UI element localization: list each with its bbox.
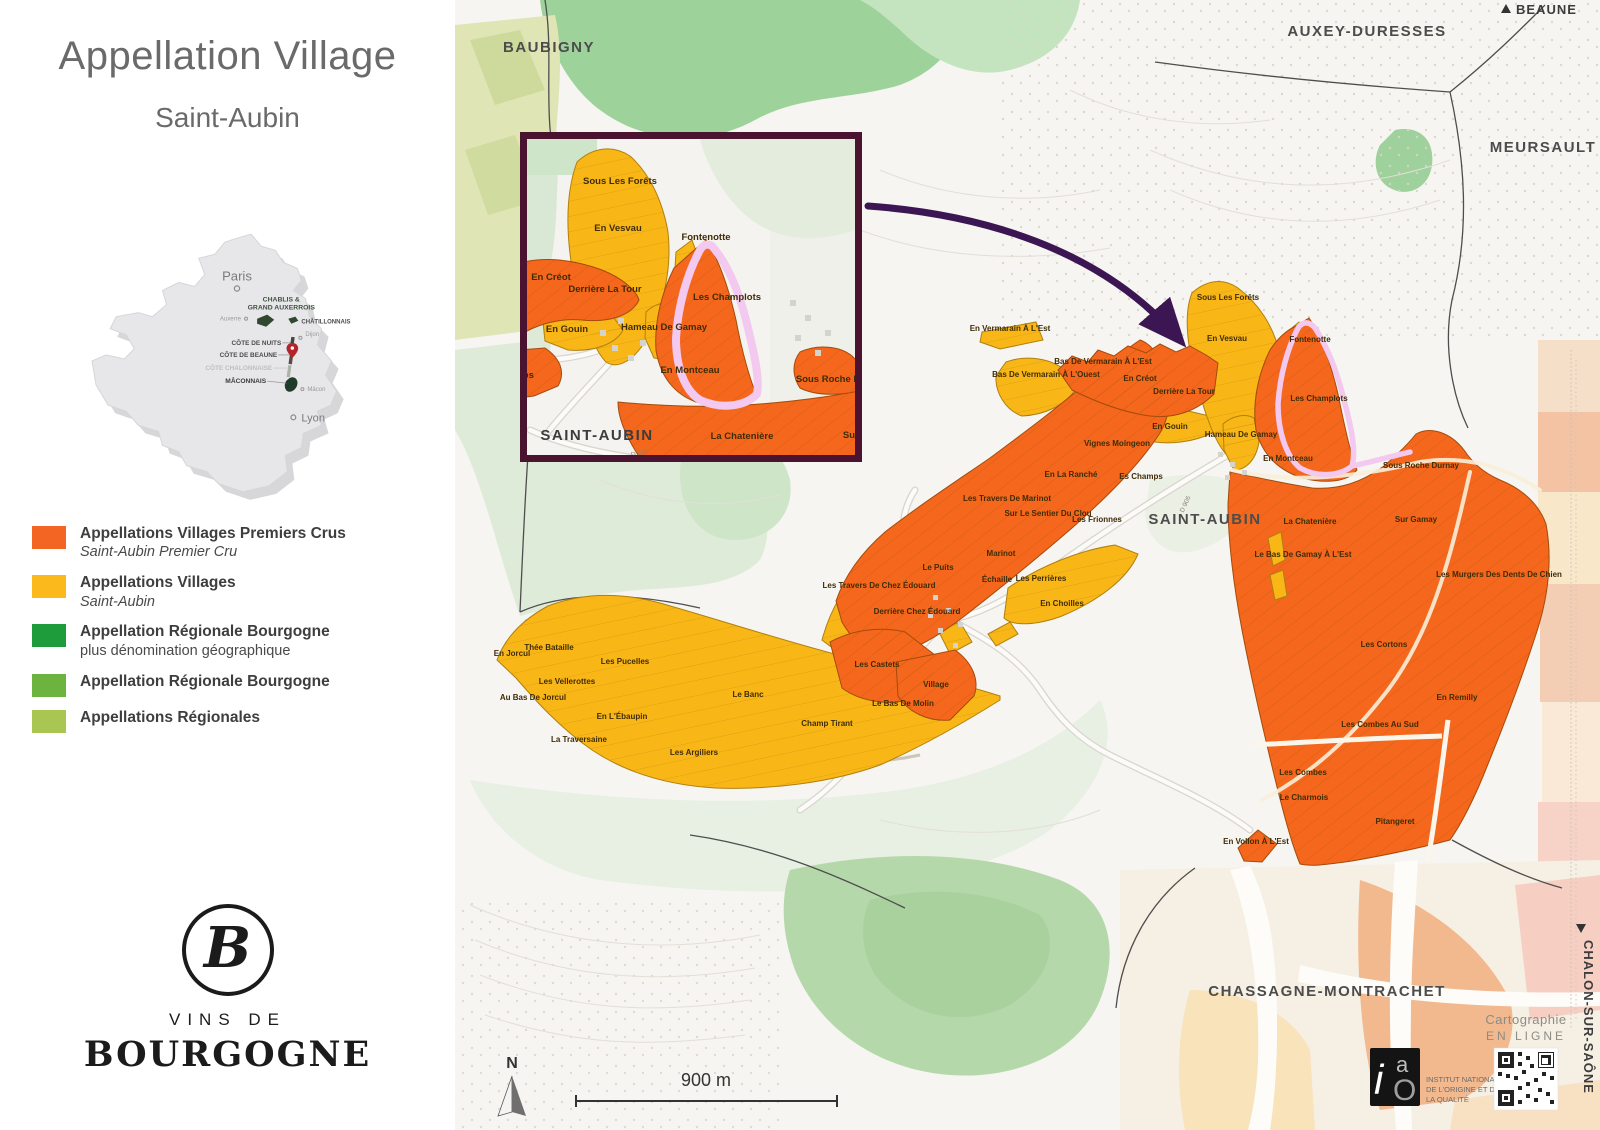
france-locator-map: Paris CHABLIS & GRAND AUXERROIS Auxerre … (84, 228, 396, 504)
stipple-top-right (1000, 0, 1600, 340)
inset-parcel-label: En Vesvau (594, 223, 642, 234)
parcel-label: Le Bas De Gamay À L'Est (1254, 550, 1351, 559)
city-label-lyon: Lyon (301, 412, 325, 424)
commune-label-baubigny: BAUBIGNY (503, 39, 595, 56)
page-subtitle: Saint-Aubin (0, 102, 455, 134)
legend-swatch-regional-denomination (32, 624, 66, 647)
commune-label-meursault: MEURSAULT (1490, 139, 1597, 156)
region-label-chablis-1: CHABLIS & (263, 297, 300, 304)
legend: Appellations Villages Premiers Crus Sain… (32, 524, 442, 744)
legend-row-regional: Appellation Régionale Bourgogne (32, 672, 442, 697)
parcel-label: Les Cortons (1361, 640, 1408, 649)
parcel-label: Les Travers De Marinot (963, 494, 1051, 503)
inset-map: Sous Les Forêts En Vesvau En Créot Derri… (482, 139, 894, 463)
legend-row-regionales: Appellations Régionales (32, 708, 442, 733)
north-label: N (506, 1055, 518, 1072)
vins-de-bourgogne-logo: B VINS DE BOURGOGNE (0, 904, 455, 1075)
inset-parcel-label: Hameau De Gamay (621, 322, 708, 333)
cartographie-label-line2: EN LIGNE (1486, 1029, 1566, 1043)
inao-caption-line2: DE L'ORIGINE ET DE (1426, 1085, 1500, 1094)
inao-logo: i a O (1370, 1048, 1420, 1107)
region-label-cote-de-nuits: CÔTE DE NUITS (232, 338, 282, 347)
parcel-label: Fontenotte (1289, 335, 1331, 344)
city-label-macon: Mâcon (307, 387, 325, 393)
parcel-label: Les Pucelles (601, 657, 650, 666)
qr-code (1494, 1048, 1558, 1110)
commune-label-chassagne-montrachet: CHASSAGNE-MONTRACHET (1208, 983, 1446, 1000)
parcel-label: Champ Tirant (801, 719, 853, 728)
parcel-label: En Montceau (1263, 454, 1313, 463)
page-title: Appellation Village (0, 34, 455, 79)
region-label-cote-chalonnaise: CÔTE CHALONNAISE (205, 363, 273, 372)
legend-swatch-villages (32, 575, 66, 598)
parcel-label: Vignes Moingeon (1084, 439, 1150, 448)
legend-title: Appellation Régionale Bourgogne (80, 672, 330, 691)
legend-title: Appellations Régionales (80, 708, 260, 727)
inset-parcel-label: La Chatenière (711, 431, 774, 442)
legend-swatch-regionales (32, 710, 66, 733)
region-label-chablis-2: GRAND AUXERROIS (248, 305, 316, 312)
logo-monogram: B (204, 920, 251, 976)
commune-label-auxey-duresses: AUXEY-DURESSES (1287, 23, 1446, 40)
parcel-label: Le Banc (732, 690, 764, 699)
parcel-label: En Vesvau (1207, 334, 1247, 343)
parcel-label: Le Puits (922, 563, 954, 572)
legend-row-villages: Appellations Villages Saint-Aubin (32, 573, 442, 611)
parcel-label: En Créot (1123, 374, 1157, 383)
parcel-label: Bas De Vermarain À L'Est (1054, 357, 1152, 366)
parcel-label: En Vollon À L'Est (1223, 837, 1289, 846)
logo-line1: VINS DE (0, 1010, 455, 1030)
legend-subtitle: Saint-Aubin Premier Cru (80, 543, 346, 562)
parcel-label: Les Travers De Chez Édouard (823, 581, 936, 590)
region-label-cote-de-beaune: CÔTE DE BEAUNE (220, 350, 278, 359)
parcel-label: Sur Gamay (1395, 515, 1438, 524)
parcel-label: Le Charmois (1280, 793, 1329, 802)
inset-town-label: SAINT-AUBIN (540, 427, 653, 444)
parcel-label: Bas De Vermarain À L'Ouest (992, 370, 1100, 379)
inao-caption-line3: LA QUALITÉ (1426, 1095, 1469, 1104)
parcel-label: Pitangeret (1375, 817, 1414, 826)
legend-subtitle: Saint-Aubin (80, 593, 236, 612)
sidebar: Appellation Village Saint-Aubin Paris CH… (0, 0, 455, 1130)
parcel-label: Échaille (982, 575, 1013, 584)
inset-parcel-label: En Gouin (546, 324, 588, 335)
parcel-label: Derrière Chez Édouard (874, 607, 961, 616)
legend-title: Appellation Régionale Bourgogne (80, 622, 330, 641)
legend-title: Appellations Villages (80, 573, 236, 592)
parcel-label: Les Combes (1279, 768, 1327, 777)
parcel-label: Sous Les Forêts (1197, 293, 1260, 302)
parcel-label: La Traversaine (551, 735, 608, 744)
inao-caption-line1: INSTITUT NATIONAL (1426, 1075, 1499, 1084)
legend-row-regional-denomination: Appellation Régionale Bourgogne plus dén… (32, 622, 442, 660)
parcel-label: Thée Bataille (524, 643, 574, 652)
parcel-label: Derrière La Tour (1153, 387, 1215, 396)
parcel-label: En Gouin (1152, 422, 1188, 431)
parcel-label: En Remilly (1437, 693, 1478, 702)
inset-parcel-label: Les Champlots (693, 292, 761, 303)
parcel-label: Les Combes Au Sud (1341, 720, 1419, 729)
legend-swatch-premier-cru (32, 526, 66, 549)
direction-label-beaune: BEAUNE (1516, 2, 1577, 17)
parcel-label: Les Murgers Des Dents De Chien (1436, 570, 1562, 579)
parcel-label: Hameau De Gamay (1205, 430, 1278, 439)
region-label-chatillonnais: CHÂTILLONNAIS (301, 319, 350, 326)
parcel-label: En Vermarain À L'Est (970, 324, 1051, 333)
legend-swatch-regional (32, 674, 66, 697)
parcel-label: Les Castets (855, 660, 900, 669)
inset-parcel-label: Derrière La Tour (568, 284, 642, 295)
poster-page: Appellation Village Saint-Aubin Paris CH… (0, 0, 1600, 1130)
parcel-label: La Chatenière (1284, 517, 1337, 526)
parcel-label: Marinot (987, 549, 1016, 558)
main-map: En Vermarain À L'Est Bas De Vermarain À … (455, 0, 1600, 1130)
inset-parcel-label: En Créot (531, 272, 571, 283)
location-pin-dot (291, 346, 294, 349)
cartographie-label-line1: Cartographie (1485, 1012, 1566, 1027)
inset-parcel-label: En Montceau (660, 365, 719, 376)
direction-label-chalon: CHALON-SUR-SAÔNE (1581, 940, 1596, 1094)
region-label-maconnais: MÂCONNAIS (225, 376, 266, 385)
parcel-label: Les Argiliers (670, 748, 719, 757)
legend-title: Appellations Villages Premiers Crus (80, 524, 346, 543)
inset-parcel-label: Sous Les Forêts (583, 176, 657, 187)
parcel-label: Les Champlots (1290, 394, 1348, 403)
city-label-auxerre: Auxerre (220, 317, 242, 323)
parcel-label: Les Vellerottes (539, 677, 596, 686)
inset-parcel-label: Fontenotte (681, 232, 730, 243)
parcel-label: En La Ranché (1045, 470, 1098, 479)
city-label-dijon: Dijon (305, 332, 319, 338)
map-canvas: En Vermarain À L'Est Bas De Vermarain À … (455, 0, 1600, 1130)
parcel-label: Village (923, 680, 949, 689)
city-label-paris: Paris (222, 268, 252, 283)
parcel-label: En L'Ébaupin (597, 712, 648, 721)
parcel-label: Les Perrières (1016, 574, 1067, 583)
parcel-label: Es Champs (1119, 472, 1163, 481)
inao-o-glyph: O (1393, 1074, 1416, 1107)
commune-label-saint-aubin: SAINT-AUBIN (1148, 511, 1261, 528)
parcel-label: Les Frionnes (1072, 515, 1122, 524)
logo-monogram-circle: B (182, 904, 274, 996)
parcel-label: En Choilles (1040, 599, 1084, 608)
logo-line2: BOURGOGNE (0, 1034, 455, 1075)
parcel-label: Au Bas De Jorcul (500, 693, 566, 702)
parcel-label: Sous Roche Durnay (1383, 461, 1460, 470)
scale-label: 900 m (681, 1070, 731, 1090)
parcel-label: Le Bas De Molin (872, 699, 934, 708)
legend-subtitle: plus dénomination géographique (80, 642, 330, 661)
legend-row-premier-cru: Appellations Villages Premiers Crus Sain… (32, 524, 442, 562)
stipple-bottom-left (455, 900, 785, 1130)
